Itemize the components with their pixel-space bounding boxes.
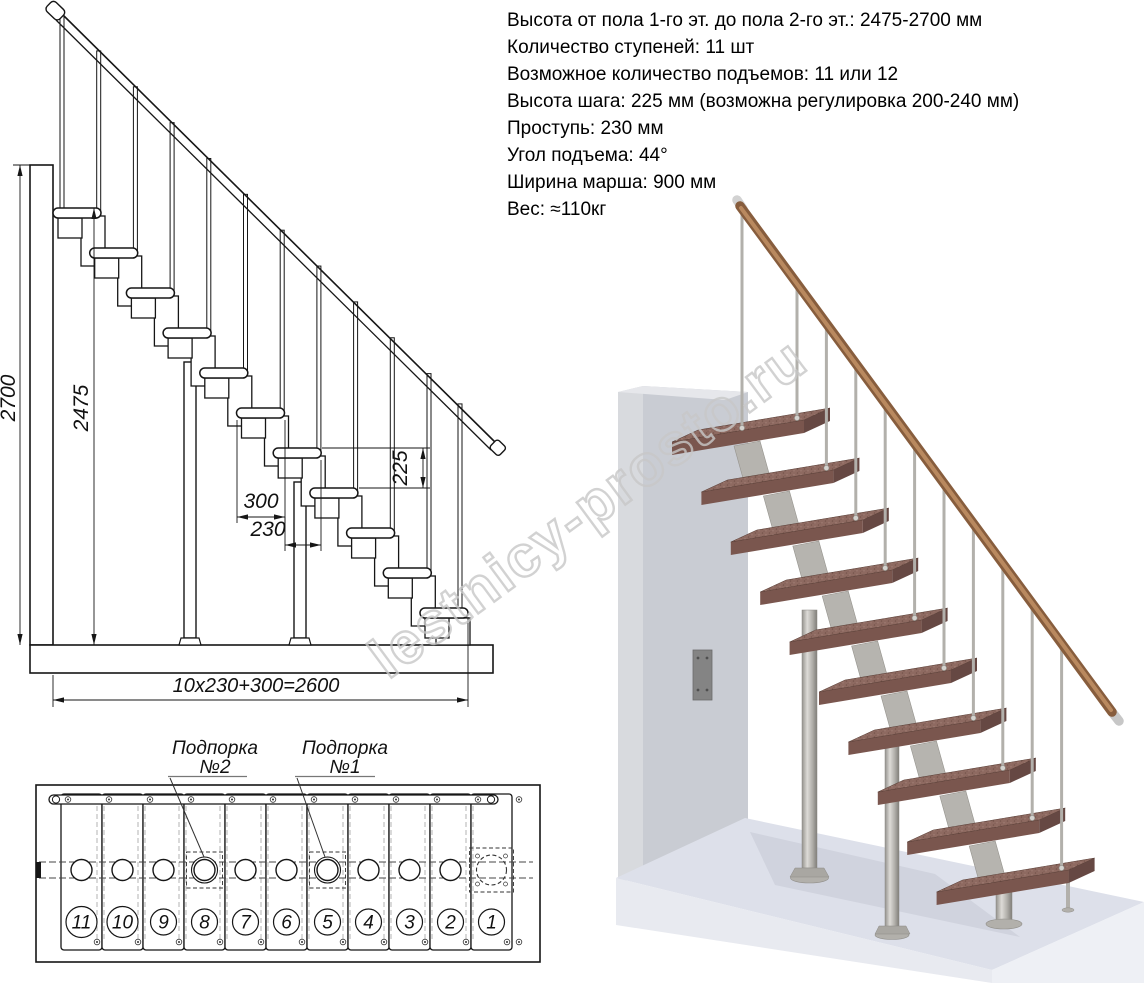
handrail [62, 14, 497, 444]
support-post [184, 362, 196, 638]
step-bracket [425, 618, 449, 638]
step-bracket [131, 298, 155, 318]
tread [383, 568, 431, 578]
step-bracket [168, 338, 192, 358]
plan-step-number: 8 [199, 913, 210, 934]
dim-to-top-tread: 2475 [70, 384, 93, 432]
spec-line: Высота от пола 1-го эт. до пола 2-го эт.… [507, 7, 1067, 34]
support-1-label-line1: Подпорка [302, 738, 388, 759]
plan-column [153, 860, 174, 881]
tread [200, 368, 248, 378]
support-1-label-line2: №1 [329, 757, 360, 778]
plan-column [399, 860, 420, 881]
plan-step-number: 11 [72, 913, 92, 934]
plan-view-drawing: Подпорка №2 Подпорка №1 1110987654321 [25, 735, 570, 983]
plan-step-number: 10 [112, 913, 134, 934]
dim-step-run: 230 [249, 518, 285, 541]
step-bracket [58, 218, 82, 238]
step-bracket [315, 498, 339, 518]
plan-step-number: 1 [486, 913, 497, 934]
wall-3d [618, 386, 643, 886]
handrail-cap [489, 439, 507, 457]
spec-line: Проступь: 230 мм [507, 115, 1067, 142]
step-bracket [278, 458, 302, 478]
support-2-label-line2: №2 [199, 757, 231, 778]
floor-section [30, 645, 493, 673]
tread [90, 248, 138, 258]
tread [237, 408, 285, 418]
spec-text: Высота от пола 1-го эт. до пола 2-го эт.… [507, 7, 1067, 223]
dim-tread-depth: 300 [243, 490, 278, 513]
plan-step-number: 6 [281, 913, 292, 934]
plan-column [194, 860, 215, 881]
plan-step-number: 5 [322, 913, 333, 934]
tread [310, 488, 358, 498]
plan-column [276, 860, 297, 881]
spec-line: Вес: ≈110кг [507, 196, 1067, 223]
tread [347, 528, 395, 538]
baluster [458, 404, 462, 608]
spec-line: Угол подъема: 44° [507, 142, 1067, 169]
wall-mount-plate [693, 650, 712, 700]
spec-line: Количество ступеней: 11 шт [507, 34, 1067, 61]
plan-column [71, 860, 92, 881]
tread [163, 328, 211, 338]
step-bracket [352, 538, 376, 558]
step-bracket [205, 378, 229, 398]
step-bracket [95, 258, 119, 278]
support-2-label-line1: Подпорка [172, 738, 258, 759]
plan-step-number: 4 [363, 913, 374, 934]
spec-line: Возможное количество подъемов: 11 или 12 [507, 61, 1067, 88]
plan-step-number: 7 [240, 913, 252, 934]
dim-step-height: 225 [389, 450, 412, 486]
stairs-spec-sheet: 2700 2475 225 300 230 10x230+300=2600 По… [0, 0, 1144, 983]
tread [126, 288, 174, 298]
spec-line: Высота шага: 225 мм (возможна регулировк… [507, 88, 1067, 115]
wall-section [30, 165, 53, 645]
tread [420, 608, 468, 618]
plan-column [440, 860, 461, 881]
step-bracket [388, 578, 412, 598]
dim-total-height: 2700 [0, 374, 20, 422]
dim-total-run: 10x230+300=2600 [173, 675, 340, 697]
plan-column [235, 860, 256, 881]
side-view-drawing: 2700 2475 225 300 230 10x230+300=2600 [0, 0, 560, 730]
step-bracket [242, 418, 266, 438]
plan-column [112, 860, 133, 881]
plan-column [358, 860, 379, 881]
tread [273, 448, 321, 458]
render-3d [600, 180, 1144, 983]
plan-step-number: 3 [404, 913, 415, 934]
spec-line: Ширина марша: 900 мм [507, 169, 1067, 196]
plan-column [317, 860, 338, 881]
baluster [60, 15, 64, 208]
support-post-3d [885, 728, 899, 932]
plan-step-number: 2 [444, 913, 456, 934]
plan-step-number: 9 [158, 913, 169, 934]
